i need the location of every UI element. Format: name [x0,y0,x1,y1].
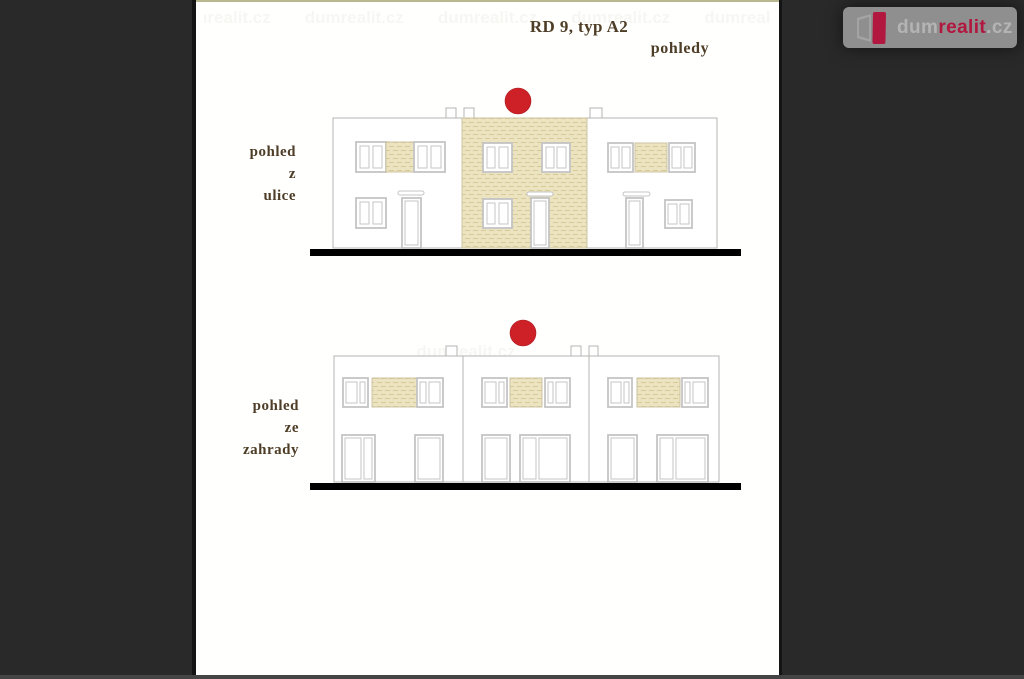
street-elevation [310,88,741,256]
brick-panel [510,378,542,407]
brick-panel [386,142,414,172]
ground-line [310,483,741,490]
logo-word-cz: .cz [986,17,1013,38]
chimney [446,108,456,118]
elevations-drawing [196,0,779,679]
chimney [446,346,457,356]
door-canopy [527,192,553,196]
logo-word-realit: realit [938,17,986,38]
dumrealit-logo[interactable]: dumrealit.cz [843,7,1017,48]
drawing-sheet: dumrealit.cz dumrealit.cz dumrealit.cz d… [192,0,782,679]
dumrealit-logo-text: dumrealit.cz [897,17,1013,39]
chimney [590,108,602,118]
brick-panel [372,378,417,407]
brick-panel [637,378,680,407]
door-canopy [398,191,424,195]
chimney [464,108,474,118]
viewer-bottom-edge [0,675,1024,679]
street-facade-brick-section [462,118,587,248]
chimney [571,346,581,356]
door-canopy [623,192,650,196]
dumrealit-door-icon [854,11,890,45]
ground-line [310,249,741,256]
brick-panel [635,143,667,172]
red-dot-marker [510,320,536,346]
red-dot-marker [505,88,531,114]
garden-elevation [310,320,741,490]
drawing-sheet-inner: dumrealit.cz dumrealit.cz dumrealit.cz d… [196,0,779,679]
viewer-background: dumrealit.cz dumrealit.cz dumrealit.cz d… [0,0,1024,679]
logo-word-dum: dum [897,17,938,38]
chimney [589,346,598,356]
